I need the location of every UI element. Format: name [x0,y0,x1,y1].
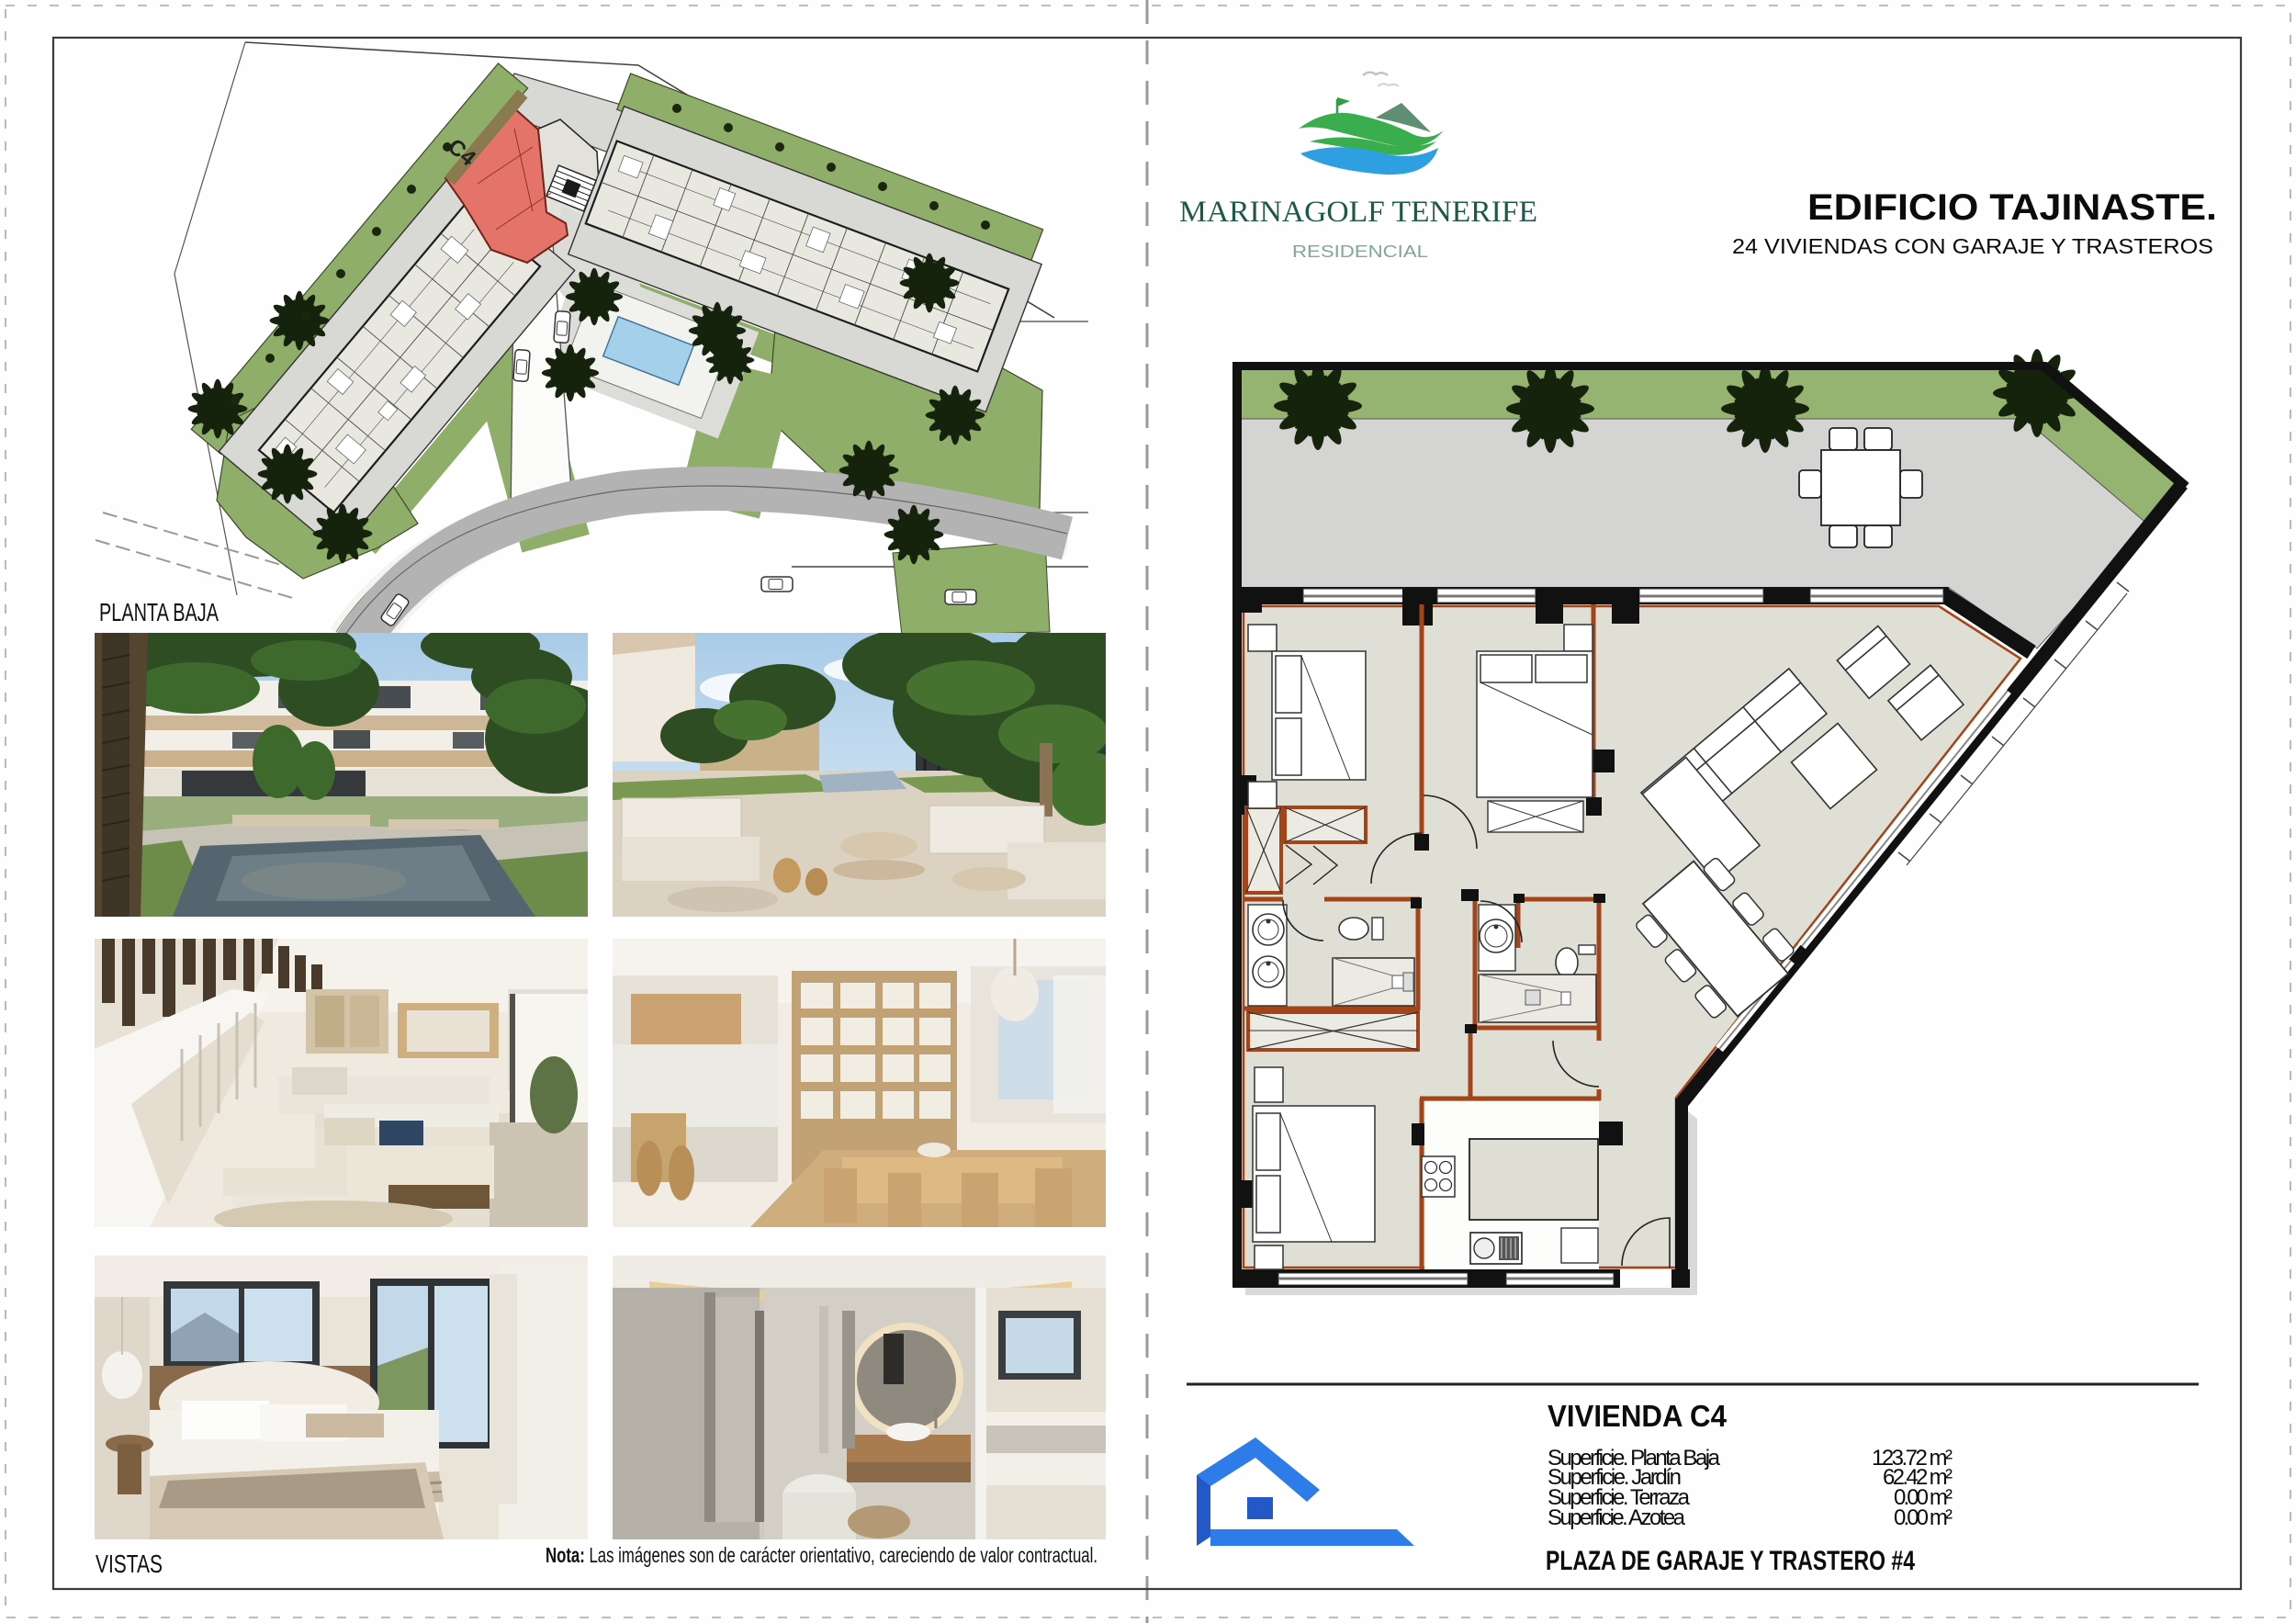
svg-text:PLANTA BAJA: PLANTA BAJA [99,598,219,626]
svg-text:EDIFICIO TAJINASTE.: EDIFICIO TAJINASTE. [1807,187,2217,228]
svg-text:Nota: Las imágenes son de cará: Nota: Las imágenes son de carácter orien… [546,1543,1097,1567]
svg-text:VISTAS: VISTAS [96,1550,163,1578]
svg-text:24 VIVIENDAS CON GARAJE Y TRAS: 24 VIVIENDAS CON GARAJE Y TRASTEROS [1732,234,2213,258]
svg-text:Superficie. Azotea: Superficie. Azotea [1548,1505,1686,1530]
svg-text:MARINAGOLF TENERIFE: MARINAGOLF TENERIFE [1179,196,1537,229]
svg-text:VIVIENDA C4: VIVIENDA C4 [1548,1399,1728,1433]
svg-text:0.00 m²: 0.00 m² [1894,1505,1953,1530]
svg-text:PLAZA DE GARAJE Y TRASTERO #4: PLAZA DE GARAJE Y TRASTERO #4 [1546,1546,1915,1576]
svg-text:RESIDENCIAL: RESIDENCIAL [1292,242,1428,261]
